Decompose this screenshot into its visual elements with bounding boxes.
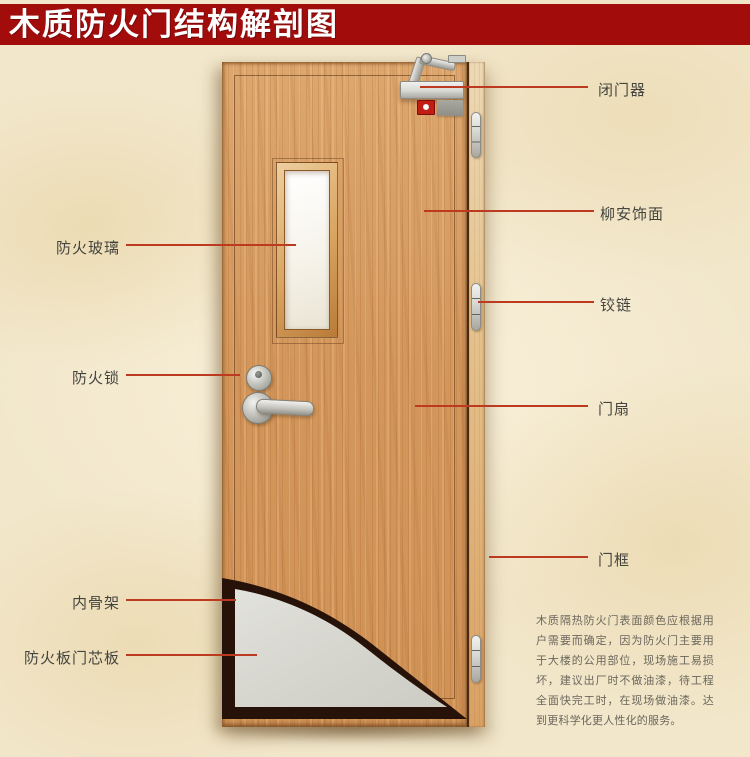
label-inner-frame: 内骨架	[0, 592, 120, 613]
callout-line-fire-glass	[126, 244, 296, 246]
fire-door-illustration	[222, 62, 485, 727]
certification-tag	[437, 100, 463, 116]
door-closer-bracket	[448, 55, 466, 63]
callout-line-fire-lock	[126, 374, 240, 376]
callout-line-door-leaf	[415, 405, 588, 407]
description-note: 木质隔热防火门表面颜色应根据用户需要而确定，因为防火门主要用于大楼的公用部位，现…	[536, 611, 714, 731]
callout-line-door-frame	[489, 556, 588, 558]
door-closer-body	[400, 81, 464, 99]
alarm-indicator	[417, 100, 435, 115]
label-door-frame: 门框	[598, 549, 630, 570]
label-fire-lock: 防火锁	[0, 367, 120, 388]
label-hinge: 铰链	[600, 294, 632, 315]
core-board-shading	[235, 589, 447, 707]
hinge-middle	[471, 283, 481, 331]
hinge-bottom	[471, 635, 481, 683]
fire-lock-cylinder	[246, 365, 272, 391]
callout-line-inner-frame	[126, 599, 236, 601]
callout-line-door-closer	[420, 86, 588, 88]
door-closer-pivot	[421, 53, 432, 64]
fire-glass-pane	[284, 170, 330, 330]
label-fire-glass: 防火玻璃	[0, 237, 120, 258]
callout-line-veneer	[424, 210, 594, 212]
callout-line-hinge	[478, 301, 594, 303]
glass-window-frame	[276, 162, 338, 338]
hinge-top	[471, 112, 481, 158]
door-handle-lever	[256, 398, 315, 416]
cutaway-section	[222, 567, 467, 727]
page-title: 木质防火门结构解剖图	[0, 4, 750, 45]
label-veneer: 柳安饰面	[600, 203, 664, 224]
callout-line-core-board	[126, 654, 257, 656]
label-core-board: 防火板门芯板	[0, 647, 120, 668]
label-door-leaf: 门扇	[598, 398, 630, 419]
door-frame-jamb	[469, 62, 485, 727]
label-door-closer: 闭门器	[598, 79, 646, 100]
